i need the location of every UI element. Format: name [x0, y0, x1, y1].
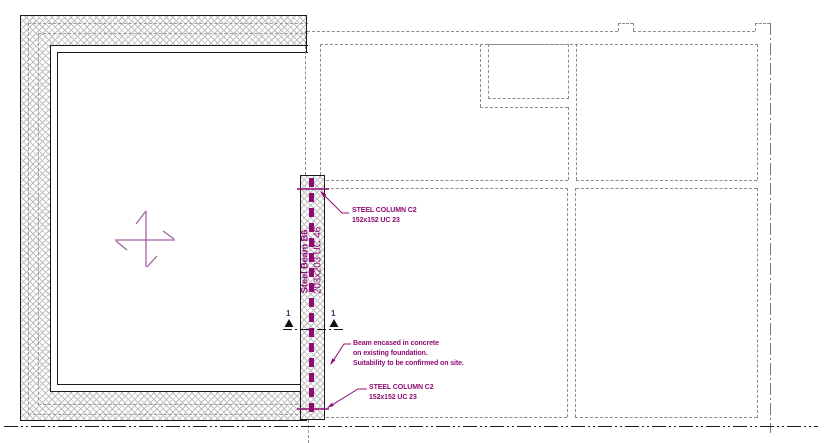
floor-plan-drawing: Steel Beam B6 203x203 UC 46: [0, 0, 840, 443]
dashed-wall-line: [308, 420, 309, 443]
leader-line-column-top: [321, 192, 349, 213]
dashed-wall-line: [576, 188, 757, 189]
dashed-wall-line: [480, 107, 568, 108]
boundary-dashdot-line-right: [770, 23, 771, 433]
note-beam-encased: Beam encased in concrete on existing fou…: [353, 339, 464, 369]
dashed-room-outline: [488, 44, 569, 99]
dashed-wall-line: [326, 180, 568, 181]
inner-wall-line-inner: [57, 52, 308, 385]
dashed-wall-line: [757, 44, 758, 180]
note-line: Suitability to be confirmed on site.: [353, 359, 464, 369]
dashed-wall-notch: [755, 23, 770, 24]
dashed-wall-notch: [618, 23, 633, 24]
note-line: 152x152 UC 23: [352, 216, 417, 226]
dashed-wall-notch: [633, 23, 634, 31]
dashed-wall-line: [575, 417, 757, 418]
boundary-dashdot-line-bottom: [4, 426, 818, 427]
note-line: STEEL COLUMN C2: [369, 383, 434, 393]
section-arrow-icon: [330, 319, 339, 327]
dashed-wall-line: [576, 44, 577, 180]
dashed-wall-line: [568, 107, 569, 180]
note-line: STEEL COLUMN C2: [352, 206, 417, 216]
leader-arrow-icon: [330, 358, 335, 365]
leader-arrow-icon: [327, 403, 334, 408]
wall-end-cap-top: [306, 15, 307, 52]
note-steel-column-top: STEEL COLUMN C2 152x152 UC 23: [352, 206, 417, 226]
note-line: on existing foundation.: [353, 349, 464, 359]
dashed-wall-line: [326, 188, 568, 189]
beam-label-size: 203x203 UC 46: [313, 219, 324, 303]
dashed-wall-line: [305, 31, 306, 175]
leader-line-encased-note: [331, 344, 351, 364]
note-line: 152x152 UC 23: [369, 393, 434, 403]
beam-label-name: Steel Beam B6: [300, 221, 311, 303]
dashed-wall-line: [326, 417, 567, 418]
section-cut-line: [283, 329, 343, 330]
dashed-wall-line: [307, 31, 618, 32]
dashed-wall-line: [567, 188, 568, 417]
dashed-wall-line: [575, 188, 576, 417]
dashed-wall-notch: [755, 23, 756, 31]
section-marker-label-right: 1: [331, 309, 335, 318]
dashed-wall-line: [633, 31, 755, 32]
section-marker-label-left: 1: [286, 309, 290, 318]
note-steel-column-bottom: STEEL COLUMN C2 152x152 UC 23: [369, 383, 434, 403]
dashed-wall-notch: [618, 23, 619, 31]
dashed-wall-line: [480, 44, 481, 107]
dashed-wall-line: [576, 180, 757, 181]
dashed-wall-line: [320, 44, 321, 175]
note-line: Beam encased in concrete: [353, 339, 464, 349]
leader-line-column-bottom: [328, 389, 367, 407]
dashed-wall-line: [757, 188, 758, 418]
